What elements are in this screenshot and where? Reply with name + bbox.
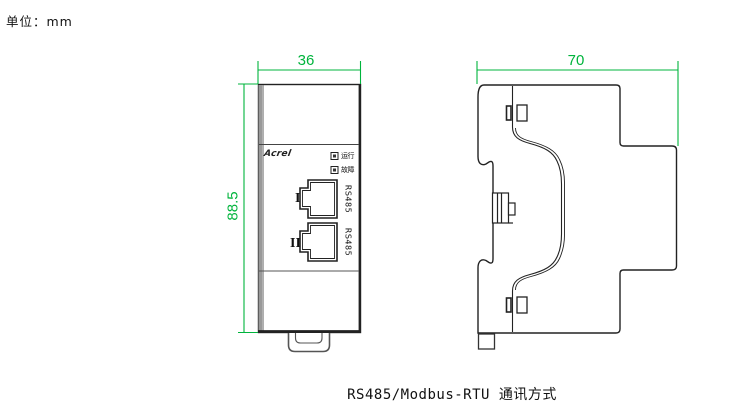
side-view-linework [478,85,677,349]
dimension-depth-70: 70 [568,52,585,69]
led-fault-label: 故障 [341,165,354,175]
front-bottom-clip [289,333,330,352]
port-2-rs485-label: RS485 [344,228,353,256]
side-release-tab [479,334,495,349]
led-run-label: 运行 [341,151,354,161]
led-indicator-run-icon [331,153,338,160]
port-2-number: II [290,236,301,252]
port-1-rs485-label: RS485 [344,185,353,213]
side-detail-rect-top-small [507,106,512,120]
side-detail-rect-top [517,105,527,121]
drawing-caption: RS485/Modbus-RTU 通讯方式 [347,384,557,404]
side-detail-rect-bottom [517,297,527,313]
port-1-number: I [295,191,300,207]
side-detail-rect-bottom-small [507,298,512,312]
brand-logo: Acrel [263,149,292,159]
dimension-height-885: 88.5 [225,191,242,220]
drawing-linework [0,0,729,413]
technical-drawing-page: 单位：mm 36 88.5 70 Acrel 运行 故障 I II RS485 … [0,0,729,413]
led-indicator-fault-icon [331,167,338,174]
front-view-linework [258,85,361,352]
unit-label: 单位：mm [6,11,73,30]
dimension-width-36: 36 [298,52,315,69]
